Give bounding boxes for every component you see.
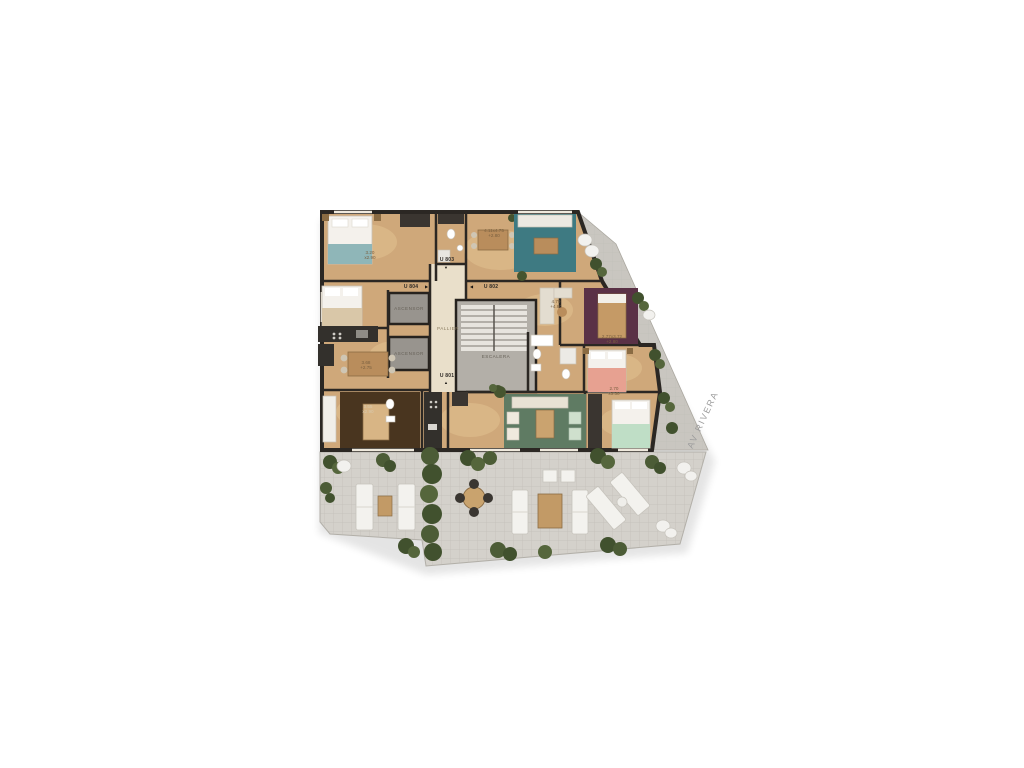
elevator-2-label: ASCENSOR xyxy=(389,351,429,356)
dim-room-bottom-left: 3.55 x2.90 xyxy=(350,404,386,415)
floorplan-drawing xyxy=(0,0,1024,768)
unit-label-u804: U 804 xyxy=(398,285,424,291)
dim-bedroom-top-left: 3.20 x2.90 xyxy=(352,250,388,261)
floorplan-image: ASCENSOR ASCENSOR PALLIER ESCALERA U 803… xyxy=(0,0,1024,768)
dim-living-top: 4.11x4.75 +2.80 xyxy=(472,228,516,239)
dim-dining-left: 3.68 +2.75 xyxy=(348,360,384,371)
unit-label-u803: U 803 xyxy=(432,258,462,264)
door-marker-u801-icon: ▲ xyxy=(444,381,448,385)
door-marker-u803-icon: ▼ xyxy=(444,266,448,270)
door-marker-u802-icon: ◀ xyxy=(470,285,473,289)
stairs-label: ESCALERA xyxy=(474,354,518,359)
stairwell xyxy=(456,300,536,392)
living-green xyxy=(493,385,586,448)
bed-bottom-right xyxy=(588,394,650,448)
dim-bedroom-bottom-right: 2.70 x3.30 xyxy=(596,386,632,397)
hall-label: PALLIER xyxy=(430,326,466,331)
living-teal xyxy=(514,214,576,272)
unit-label-u802: U 802 xyxy=(478,285,504,291)
unit-label-u801: U 801 xyxy=(432,374,462,380)
door-marker-u804-icon: ▶ xyxy=(425,285,428,289)
dim-living-right: 4.79 +4.80 xyxy=(538,299,574,310)
bed-left xyxy=(322,286,362,326)
dim-bedroom-right: 2.77x3.72 +2.80 xyxy=(590,334,634,345)
elevator-1-label: ASCENSOR xyxy=(389,306,429,311)
